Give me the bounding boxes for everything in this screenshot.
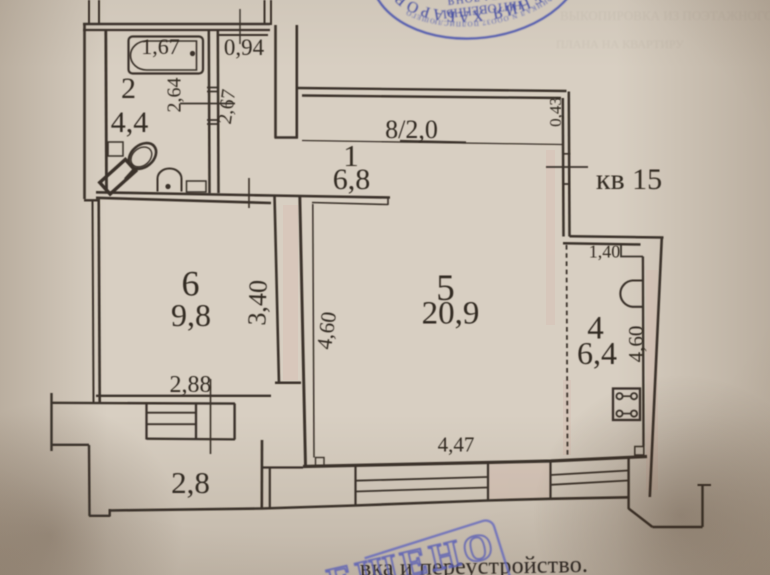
svg-text:6,8: 6,8 (333, 163, 371, 196)
svg-text:ПЛАНА НА КВАРТИРУ: ПЛАНА НА КВАРТИРУ (556, 37, 684, 51)
svg-text:ЕЩЕНО: ЕЩЕНО (323, 524, 501, 575)
svg-text:2,8: 2,8 (171, 465, 210, 500)
svg-text:ВЫКОПИРОВКА ИЗ ПОЭТАЖНОГО: ВЫКОПИРОВКА ИЗ ПОЭТАЖНОГО (560, 8, 770, 23)
svg-text:9,8: 9,8 (171, 297, 211, 333)
svg-text:6,4: 6,4 (577, 335, 617, 371)
svg-text:8/2,0: 8/2,0 (385, 115, 438, 144)
svg-text:4,47: 4,47 (438, 433, 475, 457)
svg-text:4: 4 (587, 311, 604, 347)
svg-text:0,43: 0,43 (546, 97, 565, 127)
svg-text:2,64: 2,64 (164, 78, 186, 113)
svg-text:1,40: 1,40 (589, 242, 621, 262)
svg-text:2: 2 (121, 72, 136, 105)
svg-text:кв 15: кв 15 (596, 163, 662, 196)
svg-text:3,40: 3,40 (242, 279, 273, 325)
svg-text:1,67: 1,67 (141, 34, 180, 59)
svg-text:2,88: 2,88 (170, 372, 212, 398)
svg-text:4,60: 4,60 (624, 326, 648, 363)
svg-text:20,9: 20,9 (422, 296, 480, 332)
svg-text:4,60: 4,60 (312, 310, 341, 351)
svg-text:0,94: 0,94 (224, 35, 265, 60)
svg-text:2,67: 2,67 (214, 88, 241, 126)
svg-text:4,4: 4,4 (111, 106, 149, 139)
